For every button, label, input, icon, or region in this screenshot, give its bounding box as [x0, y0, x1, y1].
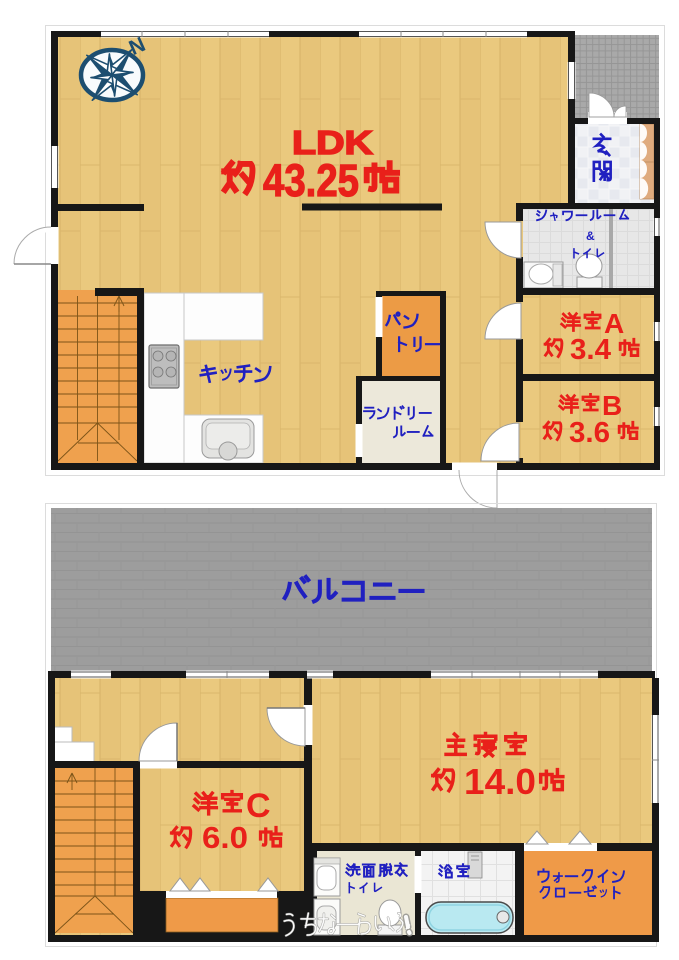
svg-text:43.25: 43.25: [263, 155, 359, 206]
svg-text:3.6: 3.6: [569, 417, 610, 449]
svg-text:14.0: 14.0: [464, 761, 536, 802]
svg-text:C: C: [246, 787, 271, 825]
svg-text:3.4: 3.4: [570, 334, 611, 366]
svg-text:&: &: [586, 229, 595, 243]
svg-text:6.0: 6.0: [202, 820, 248, 855]
